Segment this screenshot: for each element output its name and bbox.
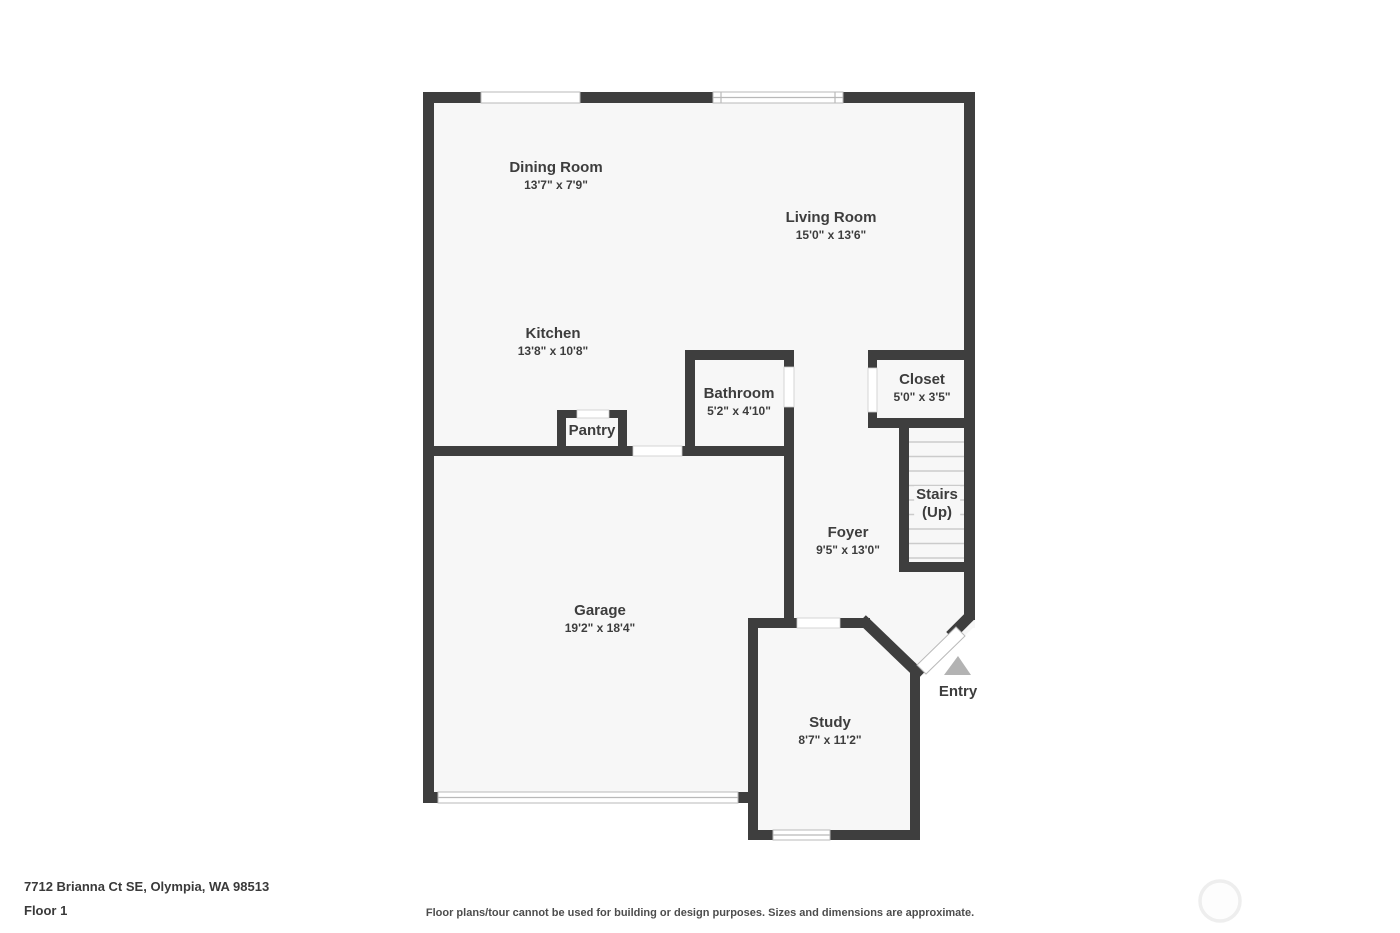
wall-foyer-garage (784, 446, 794, 628)
wall-pantry-top-left (557, 410, 577, 418)
stairs-label-line2: (Up) (914, 504, 960, 522)
room-name: Kitchen (518, 325, 588, 343)
room-name: Garage (565, 602, 635, 620)
room-name: Living Room (786, 209, 877, 227)
wall-closet-bottom (868, 418, 975, 428)
room-label-kitchen: Kitchen 13'8" x 10'8" (518, 325, 588, 359)
floorplan-page: Dining Room 13'7" x 7'9" Living Room 15'… (0, 0, 1400, 933)
wall-closet-top (868, 350, 975, 360)
room-dimensions: 19'2" x 18'4" (565, 620, 635, 636)
room-name: Bathroom (704, 385, 775, 403)
room-label-dining-room: Dining Room 13'7" x 7'9" (509, 159, 602, 193)
room-dimensions: 8'7" x 11'2" (798, 732, 861, 748)
stairs-label-line1: Stairs (914, 486, 960, 504)
floor-main-level (423, 92, 975, 456)
opening-closet-door (868, 368, 877, 412)
room-label-living-room: Living Room 15'0" x 13'6" (786, 209, 877, 243)
wall-kitchen-garage (423, 446, 633, 456)
wall-pantry-right (618, 410, 627, 452)
wall-bathroom-left (685, 350, 695, 456)
room-name: Dining Room (509, 159, 602, 177)
wall-stairs-bottom (899, 562, 975, 572)
room-label-pantry: Pantry (569, 422, 616, 440)
floorplan-drawing (0, 0, 1400, 933)
room-label-foyer: Foyer 9'5" x 13'0" (816, 524, 880, 558)
opening-bathroom-door (784, 367, 794, 407)
opening-pantry-door (577, 410, 609, 418)
entry-arrow-icon (944, 656, 971, 675)
room-dimensions: 9'5" x 13'0" (816, 542, 880, 558)
wall-bathroom-bottom (682, 446, 794, 456)
wall-bathroom-top (685, 350, 794, 360)
disclaimer-text: Floor plans/tour cannot be used for buil… (0, 907, 1400, 919)
room-label-closet: Closet 5'0" x 3'5" (893, 371, 950, 405)
room-dimensions: 15'0" x 13'6" (786, 227, 877, 243)
room-label-garage: Garage 19'2" x 18'4" (565, 602, 635, 636)
room-dimensions: 13'8" x 10'8" (518, 343, 588, 359)
wall-stairs-left (899, 428, 909, 572)
address-text: 7712 Brianna Ct SE, Olympia, WA 98513 (24, 879, 269, 894)
room-label-stairs: Stairs (Up) (914, 486, 960, 522)
window-dining (481, 92, 580, 103)
room-dimensions: 5'2" x 4'10" (704, 403, 775, 419)
floor-areas (423, 92, 975, 840)
room-dimensions: 13'7" x 7'9" (509, 177, 602, 193)
entry-label: Entry (939, 683, 977, 701)
room-label-study: Study 8'7" x 11'2" (798, 714, 861, 748)
room-label-bathroom: Bathroom 5'2" x 4'10" (704, 385, 775, 419)
wall-study-left (748, 618, 758, 840)
room-name: Closet (893, 371, 950, 389)
opening-kitchen-garage (633, 446, 682, 456)
room-dimensions: 5'0" x 3'5" (893, 389, 950, 405)
opening-study-door (797, 618, 840, 628)
room-name: Foyer (816, 524, 880, 542)
floor-foyer (786, 446, 975, 628)
wall-study-right (910, 668, 920, 840)
room-name: Study (798, 714, 861, 732)
